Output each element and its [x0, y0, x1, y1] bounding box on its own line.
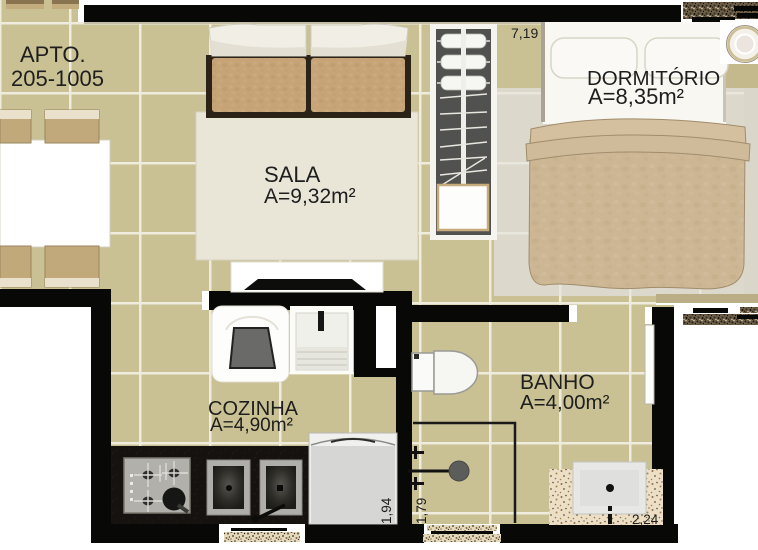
svg-text:1,94: 1,94 — [379, 497, 394, 524]
svg-text:205-1005: 205-1005 — [11, 66, 104, 91]
svg-text:A=9,32m²: A=9,32m² — [264, 185, 356, 208]
svg-text:1,79: 1,79 — [414, 498, 429, 524]
svg-text:SALA: SALA — [264, 162, 321, 187]
svg-text:2,24: 2,24 — [632, 512, 659, 527]
svg-text:APTO.: APTO. — [20, 42, 86, 67]
svg-text:A=4,00m²: A=4,00m² — [520, 391, 610, 414]
svg-text:7,19: 7,19 — [511, 25, 538, 41]
svg-text:A=4,90m²: A=4,90m² — [210, 415, 293, 436]
svg-text:A=8,35m²: A=8,35m² — [588, 84, 684, 109]
